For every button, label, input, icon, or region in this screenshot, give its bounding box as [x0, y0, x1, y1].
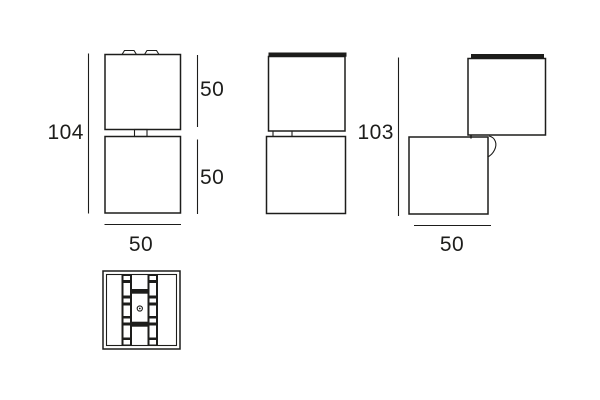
plan-view: [103, 271, 180, 349]
plan-rail-slot: [124, 340, 131, 345]
plan-rail-slot: [124, 299, 131, 303]
plan-rail-slot: [124, 319, 131, 323]
plan-rail-slot: [150, 319, 157, 323]
dim-label-front-width: 50: [129, 233, 153, 256]
dim-label-front-total-height: 104: [47, 121, 84, 144]
rotated-view: 103 50: [357, 54, 545, 256]
rotated-bottom-module: [409, 137, 488, 214]
plan-rail-slot: [124, 283, 131, 296]
rotated-top-cap: [471, 54, 544, 58]
front-top-module: [105, 55, 181, 130]
dim-label-front-bottom-module: 50: [200, 166, 224, 189]
plan-rail-slot: [150, 306, 157, 317]
plan-rail-slot: [150, 299, 157, 303]
side-top-module: [269, 57, 346, 132]
pivot-cable-curve: [488, 136, 496, 157]
rotated-top-module: [468, 59, 546, 136]
screw-center-dot: [139, 308, 141, 310]
front-center-connector: [135, 130, 148, 137]
dim-label-rotated-width: 50: [440, 233, 464, 256]
plan-rail-slot: [150, 326, 157, 338]
plan-rail-slot: [124, 276, 131, 280]
plan-rail-slot: [150, 340, 157, 345]
plan-crossbar-bottom: [132, 322, 148, 327]
drawing-svg: 104 50 50 50 103: [0, 0, 600, 400]
plan-rail-slot: [150, 276, 157, 280]
dim-label-rotated-total-height: 103: [357, 121, 394, 144]
plan-rail-slot: [124, 306, 131, 317]
plan-rail-slot: [150, 283, 157, 296]
front-view: 104 50 50 50: [47, 51, 224, 257]
dim-label-front-top-module: 50: [200, 78, 224, 101]
dimension-drawing: 104 50 50 50 103: [0, 0, 600, 400]
front-bottom-module: [105, 137, 181, 214]
plan-rail-slot: [124, 326, 131, 338]
side-bottom-module: [267, 137, 346, 214]
side-view: [267, 53, 347, 214]
plan-crossbar-top: [132, 289, 148, 294]
